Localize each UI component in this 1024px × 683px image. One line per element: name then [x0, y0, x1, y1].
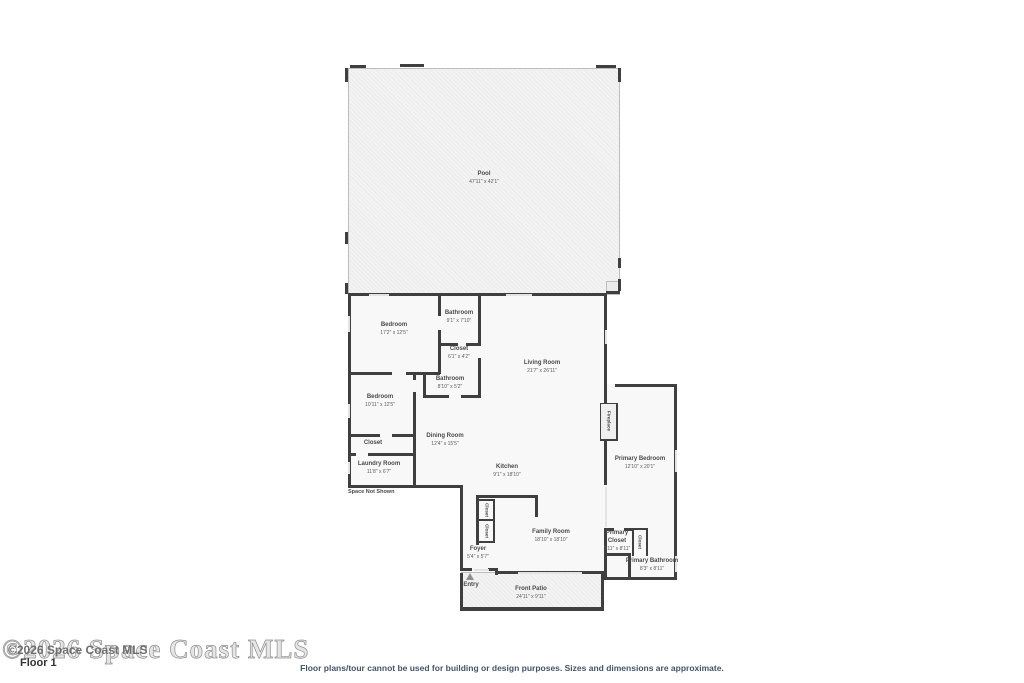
wall-segment	[438, 293, 441, 316]
pool-edge-tick	[618, 258, 621, 268]
floor-plan-page: Pool 47'11" x 42'1" Bedroom 17'2" x 12'5…	[0, 0, 1024, 683]
wall-segment	[478, 293, 481, 346]
pool-edge-tick	[345, 283, 348, 294]
wall-segment	[476, 495, 538, 498]
window-opening	[506, 294, 532, 296]
wall-segment	[348, 485, 463, 488]
window-opening	[348, 316, 350, 332]
pool-area	[348, 68, 620, 295]
wall-segment	[413, 372, 416, 380]
window-opening	[675, 556, 677, 572]
wall-segment	[413, 392, 416, 487]
pool-edge-tick	[618, 68, 621, 82]
wall-segment	[493, 499, 495, 543]
window-opening	[675, 450, 677, 472]
wall-segment	[460, 573, 463, 609]
mls-watermark-overlay: ©2026 Space Coast MLS	[8, 643, 148, 657]
wall-segment	[348, 372, 392, 375]
wall-segment	[438, 330, 441, 374]
room-label-kitchen-closet-2: Closet	[485, 524, 490, 538]
wall-segment	[615, 384, 677, 387]
pool-edge-tick	[345, 68, 348, 82]
pool-edge-tick	[350, 65, 366, 68]
wall-segment	[348, 453, 356, 456]
pool-edge-tick	[400, 64, 424, 67]
wall-segment	[628, 553, 631, 580]
wall-segment	[368, 453, 415, 456]
pool-edge-tick	[345, 232, 348, 244]
front-patio-area	[461, 572, 604, 610]
disclaimer-text: Floor plans/tour cannot be used for buil…	[0, 663, 1024, 673]
wall-segment	[604, 553, 631, 556]
room-label-kitchen-closet-1: Closet	[485, 503, 490, 517]
space-not-shown-note: Space Not Shown	[348, 489, 394, 495]
pool-edge-tick	[618, 279, 621, 291]
wall-segment	[616, 403, 618, 441]
wall-segment	[461, 395, 480, 398]
window-opening	[348, 462, 350, 474]
window-opening	[474, 569, 489, 571]
wall-segment	[601, 573, 604, 609]
wall-segment	[348, 434, 380, 437]
wall-segment	[460, 568, 472, 571]
room-label-primary-closet-small: Closet	[638, 535, 643, 549]
window-opening	[605, 330, 607, 344]
wall-segment	[604, 387, 607, 403]
wall-segment	[460, 607, 604, 611]
wall-segment	[604, 577, 677, 580]
wall-segment	[604, 441, 607, 485]
window-opening	[348, 404, 350, 418]
wall-segment	[632, 528, 634, 556]
window-opening	[605, 487, 607, 527]
wall-segment	[478, 358, 481, 398]
room-label-fireplace: Fireplace	[607, 411, 612, 431]
wall-segment	[535, 495, 538, 517]
wall-segment	[423, 372, 426, 397]
wall-segment	[646, 528, 648, 556]
window-opening	[518, 572, 582, 574]
window-opening	[369, 294, 389, 296]
wall-segment	[440, 343, 458, 346]
entry-arrow-icon	[466, 573, 474, 580]
wall-segment	[423, 395, 449, 398]
wall-segment	[460, 485, 463, 571]
pool-edge-tick	[596, 65, 616, 68]
wall-segment	[604, 528, 614, 531]
wall-segment	[674, 384, 677, 580]
pool-edge-tick	[606, 291, 620, 294]
wall-segment	[392, 434, 415, 437]
